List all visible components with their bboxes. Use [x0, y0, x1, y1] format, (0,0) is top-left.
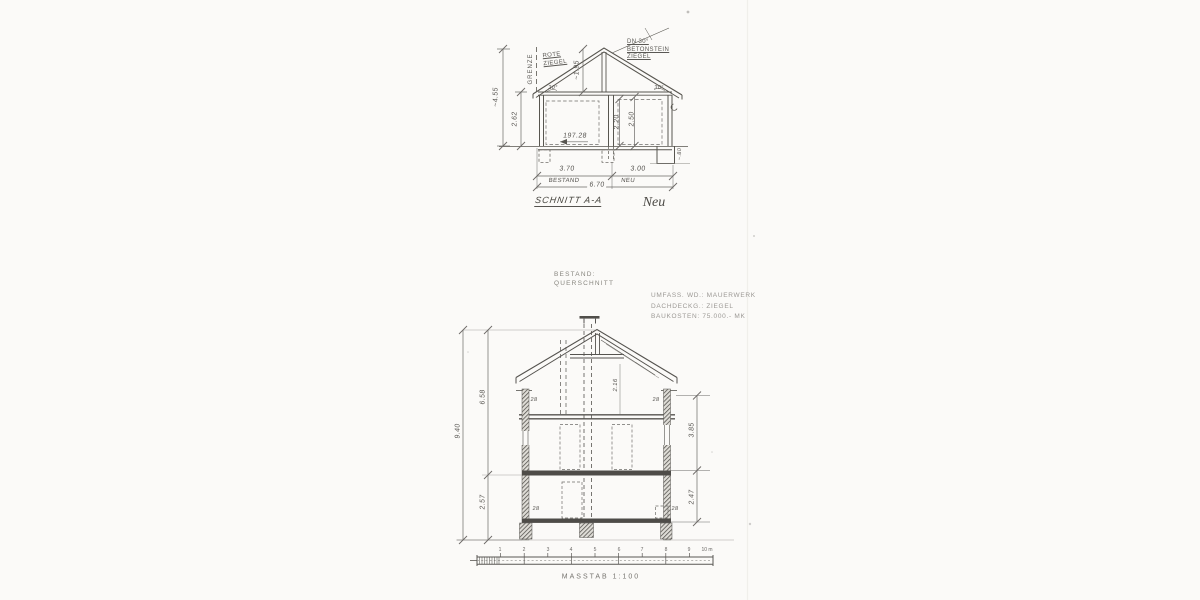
dim-attic-room: 2.16: [613, 378, 619, 392]
dim-bottom-right-upper: 3.85: [689, 422, 696, 438]
heading-line1: BESTAND:: [554, 270, 614, 279]
handwritten-neu-note: Neu: [643, 195, 666, 211]
top-section-dimension-lines: [497, 45, 677, 191]
scale-tick-3: 3: [547, 547, 550, 553]
construction-notes: UMFASS. WD.: MAUERWERK DACHDECKG.: ZIEGE…: [651, 291, 756, 323]
bottom-drawing-heading: BESTAND: QUERSCHNITT: [554, 270, 614, 288]
scale-tick-8: 8: [665, 547, 668, 553]
wall-thickness-right-upper: 28: [652, 397, 660, 403]
top-drawing-title: SCHNITT A-A: [534, 195, 603, 207]
drawing-linework: [0, 0, 1200, 600]
roof-note-line1: DN 30°: [627, 39, 669, 47]
dim-bottom-ground-height: 2.57: [480, 494, 487, 510]
roof-pitch-note: DN 30° BETONSTEIN ZIEGEL: [627, 39, 669, 62]
note-cost: BAUKOSTEN: 75.000.- MK: [651, 312, 756, 323]
scale-bar-linework: [470, 553, 713, 566]
roof-angle-left: 30°: [548, 85, 558, 91]
roof-note-line2: BETONSTEIN: [627, 47, 669, 55]
width-label-neu: NEU: [621, 178, 636, 184]
dim-step-right: ~.80: [677, 147, 683, 160]
scale-tick-6: 6: [618, 547, 621, 553]
dim-width-bestand: 3.70: [559, 166, 575, 173]
roof-note-line3: ZIEGEL: [627, 54, 669, 62]
wall-thickness-left-lower: 28: [532, 506, 540, 512]
dim-total-height: ~4.55: [493, 87, 500, 108]
roof-angle-right: 30°: [654, 85, 664, 91]
note-roofing: DACHDECKG.: ZIEGEL: [651, 302, 756, 313]
dim-room-left-height: 2.20: [614, 114, 621, 130]
wall-thickness-right-lower: 28: [671, 506, 679, 512]
dim-bottom-total-height: 9.40: [455, 423, 462, 439]
dim-bottom-right-lower: 2.47: [689, 489, 696, 505]
scale-tick-2: 2: [523, 547, 526, 553]
dim-width-total: 6.70: [587, 182, 607, 189]
scanned-architectural-drawing: GRENZE ROTE ZIEGEL DN 30° BETONSTEIN ZIE…: [0, 0, 1200, 600]
wall-thickness-left-upper: 28: [530, 397, 538, 403]
scale-caption: MASSTAB 1:100: [562, 574, 640, 581]
scale-tick-10m: 10 m: [701, 547, 712, 553]
scale-tick-5: 5: [594, 547, 597, 553]
level-mark: 197.28: [563, 133, 588, 140]
dim-room-right-height: 2.50: [629, 111, 636, 127]
scale-tick-7: 7: [641, 547, 644, 553]
roof-material-note: ROTE ZIEGEL: [542, 51, 567, 68]
note-walls: UMFASS. WD.: MAUERWERK: [651, 291, 756, 302]
scale-tick-9: 9: [688, 547, 691, 553]
width-label-bestand: BESTAND: [548, 178, 579, 184]
dim-width-neu: 3.00: [630, 166, 646, 173]
dim-ridge-height: ~1.95: [574, 60, 581, 81]
dim-bottom-upper-height: 6.58: [480, 389, 487, 405]
scale-tick-1: 1: [499, 547, 502, 553]
boundary-label: GRENZE: [528, 53, 534, 84]
scale-tick-4: 4: [570, 547, 573, 553]
heading-line2: QUERSCHNITT: [554, 279, 614, 288]
dim-wall-height: 2.62: [512, 111, 519, 127]
